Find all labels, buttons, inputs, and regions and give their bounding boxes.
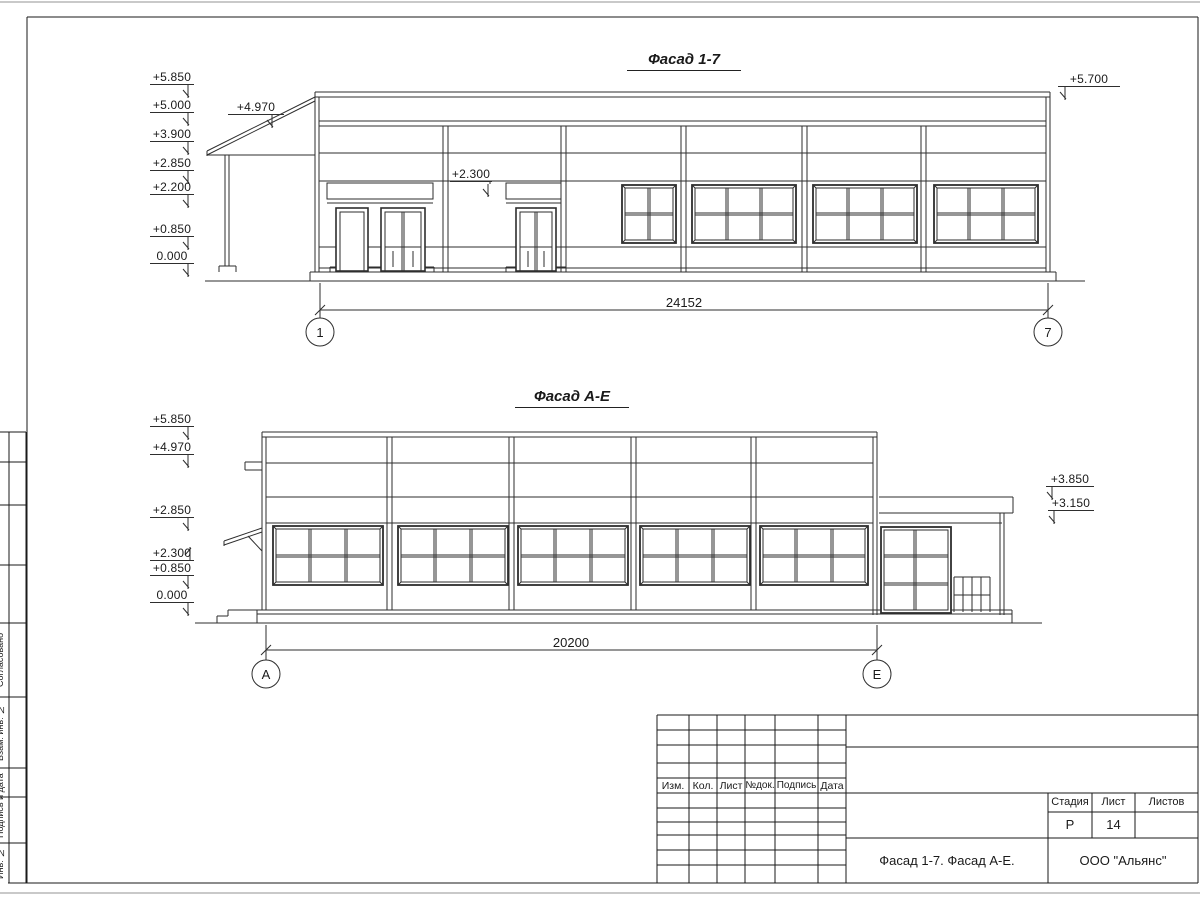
elevation-mark: 0.000 [150, 250, 194, 264]
side-stamp-label: Взам. инв. № [0, 697, 7, 768]
elevation-mark: +5.000 [150, 99, 194, 113]
side-stamp-label: Согласовано [0, 623, 7, 697]
grid-axis-label: Е [863, 667, 891, 682]
titleblock-col-podpis: Подпись [775, 780, 818, 792]
elevation-mark: +4.970 [228, 101, 284, 115]
elevation-mark: +2.200 [150, 181, 194, 195]
elevation-mark: +2.850 [150, 504, 194, 518]
side-stamp-label: Инв. № подл. [0, 843, 7, 883]
titleblock-col-kol: Кол. [689, 780, 717, 792]
facade-a-e-drawing [195, 432, 1042, 688]
elevation-mark: 0.000 [150, 589, 194, 603]
elevation-mark: +2.300 [150, 547, 194, 561]
dimension-text: 24152 [654, 295, 714, 310]
titleblock-sheet-label: Лист [1092, 796, 1135, 808]
grid-axis-label: А [252, 667, 280, 682]
elevation-mark: +0.850 [150, 223, 194, 237]
titleblock-col-ndok: №док. [745, 780, 775, 792]
drawing-sheet: Фасад 1-7 Фасад А-Е +5.850 +5.000 +3.900… [0, 0, 1200, 900]
titleblock-sheets-value [1135, 812, 1198, 838]
elevation-mark: +5.700 [1058, 73, 1120, 87]
elevation-mark: +4.970 [150, 441, 194, 455]
facade-a-e-title: Фасад А-Е [515, 388, 629, 408]
elevation-mark: +2.850 [150, 157, 194, 171]
elevation-mark: +3.850 [1046, 473, 1094, 487]
elevation-mark: +3.150 [1048, 497, 1094, 511]
grid-axis-label: 7 [1034, 325, 1062, 340]
titleblock-stage-label: Стадия [1048, 796, 1092, 808]
elevation-mark: +0.850 [150, 562, 194, 576]
facade-1-7-drawing [205, 92, 1085, 346]
grid-axis-label: 1 [306, 325, 334, 340]
titleblock-col-izm: Изм. [657, 780, 689, 792]
titleblock-sheet-value: 14 [1092, 812, 1135, 838]
elevation-mark: +3.900 [150, 128, 194, 142]
titleblock-drawing-name: Фасад 1-7. Фасад А-Е. [846, 838, 1048, 883]
elevation-mark: +5.850 [150, 413, 194, 427]
elevation-mark: +2.300 [450, 168, 492, 182]
side-stamp-label: Подпись и дата [0, 768, 7, 843]
dimension-text: 20200 [541, 635, 601, 650]
titleblock-col-list: Лист [717, 780, 745, 792]
facade-1-7-title: Фасад 1-7 [627, 51, 741, 71]
titleblock-organization: ООО "Альянс" [1048, 838, 1198, 883]
titleblock-sheets-label: Листов [1135, 796, 1198, 808]
titleblock-col-data: Дата [818, 780, 846, 792]
titleblock-stage-value: Р [1048, 812, 1092, 838]
elevation-mark: +5.850 [150, 71, 194, 85]
